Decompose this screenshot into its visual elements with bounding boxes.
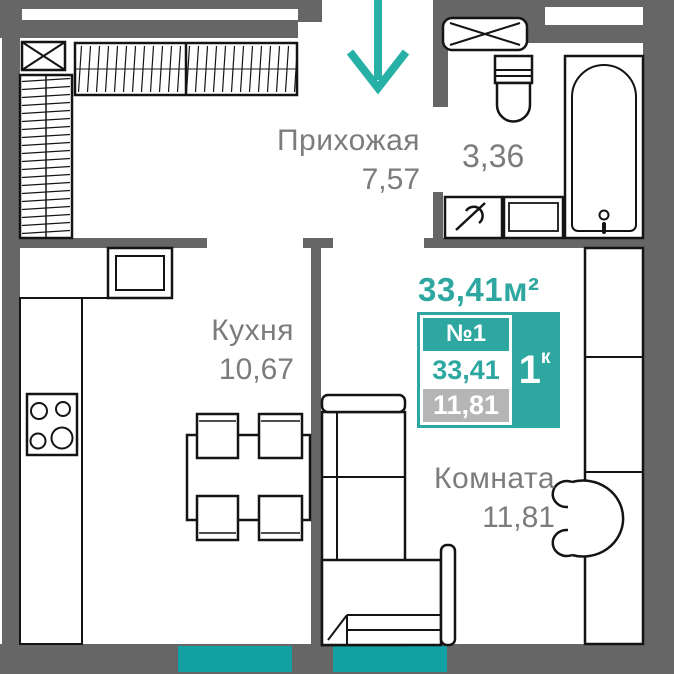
- wall-left: [2, 0, 20, 648]
- floor-plan: Прихожая 7,57 3,36 Кухня 10,67 Комната 1…: [0, 0, 674, 674]
- living-room-window: [333, 646, 447, 672]
- hallway-label: Прихожая 7,57: [277, 123, 420, 198]
- bathroom-cabinet: [504, 197, 563, 238]
- apartment-card-values: №1 33,41 11,81: [420, 315, 512, 425]
- living-name: Комната: [434, 461, 555, 497]
- armchair: [553, 481, 623, 557]
- living-area-value: 11,81: [423, 389, 509, 422]
- dining-table: [187, 435, 310, 520]
- wall-bathroom-bottom: [424, 238, 674, 248]
- wall-top-window-niche: [22, 9, 298, 20]
- living-area: 11,81: [434, 500, 555, 536]
- living-label: Комната 11,81: [434, 461, 555, 536]
- hallway-area: 7,57: [277, 162, 420, 198]
- apartment-card: №1 33,41 11,81 1 к: [417, 312, 560, 428]
- bathroom-area: 3,36: [462, 137, 524, 175]
- toilet: [495, 56, 532, 121]
- rooms-unit: к: [541, 347, 551, 369]
- sink: [445, 197, 502, 238]
- chair: [259, 414, 302, 458]
- wall-bathroom-left: [433, 0, 448, 107]
- wall-kitchen-living: [311, 248, 321, 644]
- kitchen-area: 10,67: [211, 352, 294, 388]
- kitchen-label: Кухня 10,67: [211, 313, 294, 388]
- kitchen-name: Кухня: [211, 313, 294, 349]
- rooms-count: 1: [519, 350, 541, 390]
- chair: [197, 414, 238, 458]
- hallway-wardrobe: [75, 43, 297, 95]
- chair: [259, 496, 302, 540]
- vent-shaft-icon: [22, 42, 65, 70]
- entrance-arrow-icon: [340, 0, 416, 96]
- hallway-name: Прихожая: [277, 123, 420, 159]
- fridge: [108, 248, 172, 298]
- living-wardrobe: [585, 248, 643, 644]
- wall-top-left-jamb: [298, 0, 322, 22]
- wall-bathroom-left-stub: [433, 192, 443, 238]
- apartment-number: №1: [423, 318, 509, 351]
- wall-right: [643, 0, 674, 674]
- left-wardrobe: [20, 75, 72, 238]
- kitchen-window: [178, 646, 292, 672]
- wall-top-right-niche: [545, 7, 653, 25]
- furniture-layer: [0, 0, 674, 674]
- rooms-count-badge: 1 к: [512, 315, 557, 425]
- total-area-title: 33,41м²: [418, 271, 568, 309]
- chair: [197, 496, 238, 540]
- bathroom-label: 3,36: [462, 137, 524, 175]
- total-area-value: 33,41: [423, 354, 509, 387]
- wall-hall-kitchen: [20, 238, 207, 248]
- wall-hall-kitchen-jamb: [303, 238, 333, 248]
- stove: [27, 394, 77, 455]
- kitchen-counter: [20, 298, 108, 644]
- bathtub: [565, 56, 643, 238]
